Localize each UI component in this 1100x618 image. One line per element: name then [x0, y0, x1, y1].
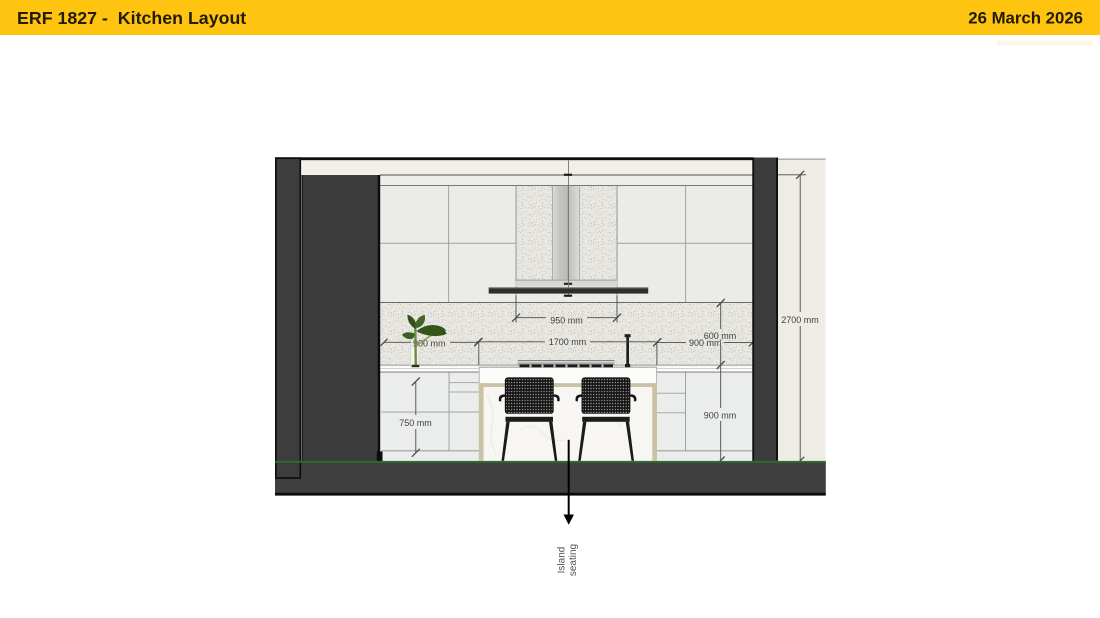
svg-text:750 mm: 750 mm: [399, 418, 432, 428]
svg-text:ERF 1827 - Kitchen Layout: ERF 1827 - Kitchen Layout: [17, 8, 246, 28]
svg-text:600 mm: 600 mm: [704, 331, 737, 341]
svg-text:900 mm: 900 mm: [704, 410, 737, 420]
svg-text:Island: Island: [557, 547, 568, 574]
svg-text:950 mm: 950 mm: [550, 315, 583, 325]
svg-text:2700 mm: 2700 mm: [781, 315, 819, 325]
svg-text:1700 mm: 1700 mm: [549, 337, 587, 347]
svg-text:26 March 2026: 26 March 2026: [968, 9, 1083, 28]
svg-text:seating: seating: [568, 544, 579, 576]
